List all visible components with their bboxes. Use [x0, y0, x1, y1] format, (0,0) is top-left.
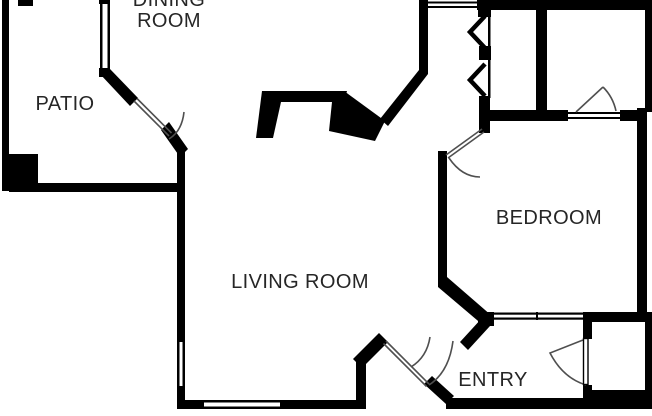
bifold-door-icon: [470, 64, 485, 96]
door-leaf: [386, 341, 429, 384]
room-label-bedroom: BEDROOM: [488, 208, 610, 229]
window-living-south: [204, 400, 280, 409]
fireplace-right-mass: [329, 91, 385, 141]
door-swing-arc: [449, 158, 480, 177]
wall-closet-divider: [536, 4, 547, 112]
wall-closet-right: [645, 320, 652, 392]
wall-hall-left: [419, 0, 428, 74]
wall-bifold-bottom-stub: [479, 96, 490, 133]
wall-closet-left-upper: [583, 320, 592, 339]
door-sill-bathroom: [568, 112, 620, 119]
door-swing-arc: [411, 337, 430, 367]
wall-right-lower: [637, 108, 647, 322]
wall-top-left-stub: [18, 0, 33, 6]
wall-entry-stub-diagonal: [353, 333, 388, 368]
floorplan-canvas: DINING ROOM PATIO LIVING ROOM BEDROOM EN…: [0, 0, 652, 416]
door-leaf: [448, 132, 484, 158]
door-swing-arc: [550, 340, 586, 385]
door-leaf: [584, 339, 589, 385]
wall-patio-bottom: [9, 183, 185, 192]
room-label-dining-room: DINING ROOM: [112, 0, 226, 32]
wall-living-south-2: [280, 400, 358, 409]
wall-right-upper: [645, 8, 652, 112]
door-leaf: [137, 99, 172, 134]
wall-top: [477, 0, 652, 10]
door-entry: [384, 337, 454, 387]
room-label-patio: PATIO: [25, 94, 105, 115]
door-swing-arc: [603, 87, 616, 111]
door-dining-patio: [134, 99, 184, 140]
wall-closet-bottom: [583, 390, 652, 403]
door-leaf: [576, 87, 603, 112]
walls-layer: [2, 0, 652, 409]
wall-dining-diagonal-upper: [100, 69, 138, 106]
door-entry-closet: [550, 339, 588, 386]
room-label-living-room: LIVING ROOM: [225, 272, 375, 293]
bifold-door-icon: [470, 16, 485, 48]
door-leaf: [134, 101, 169, 136]
bifold-track-line: [488, 13, 491, 98]
window-dining-west: [100, 0, 110, 70]
wall-hall-diagonal: [380, 70, 428, 126]
window-hall-top: [427, 2, 478, 9]
door-bathroom: [576, 87, 616, 112]
room-label-entry: ENTRY: [452, 370, 534, 391]
wall-bedroom-left: [438, 151, 447, 280]
door-leaf: [446, 129, 482, 155]
wall-entry-doorway-stub: [460, 318, 490, 350]
wall-living-west-upper: [177, 151, 185, 342]
window-living-west: [177, 342, 185, 386]
wall-living-south-1: [177, 400, 204, 409]
wall-bath-south-left: [480, 110, 568, 121]
door-leaf: [384, 344, 427, 387]
door-bedroom: [446, 129, 484, 177]
passthrough-entry-bedroom: [490, 312, 583, 320]
